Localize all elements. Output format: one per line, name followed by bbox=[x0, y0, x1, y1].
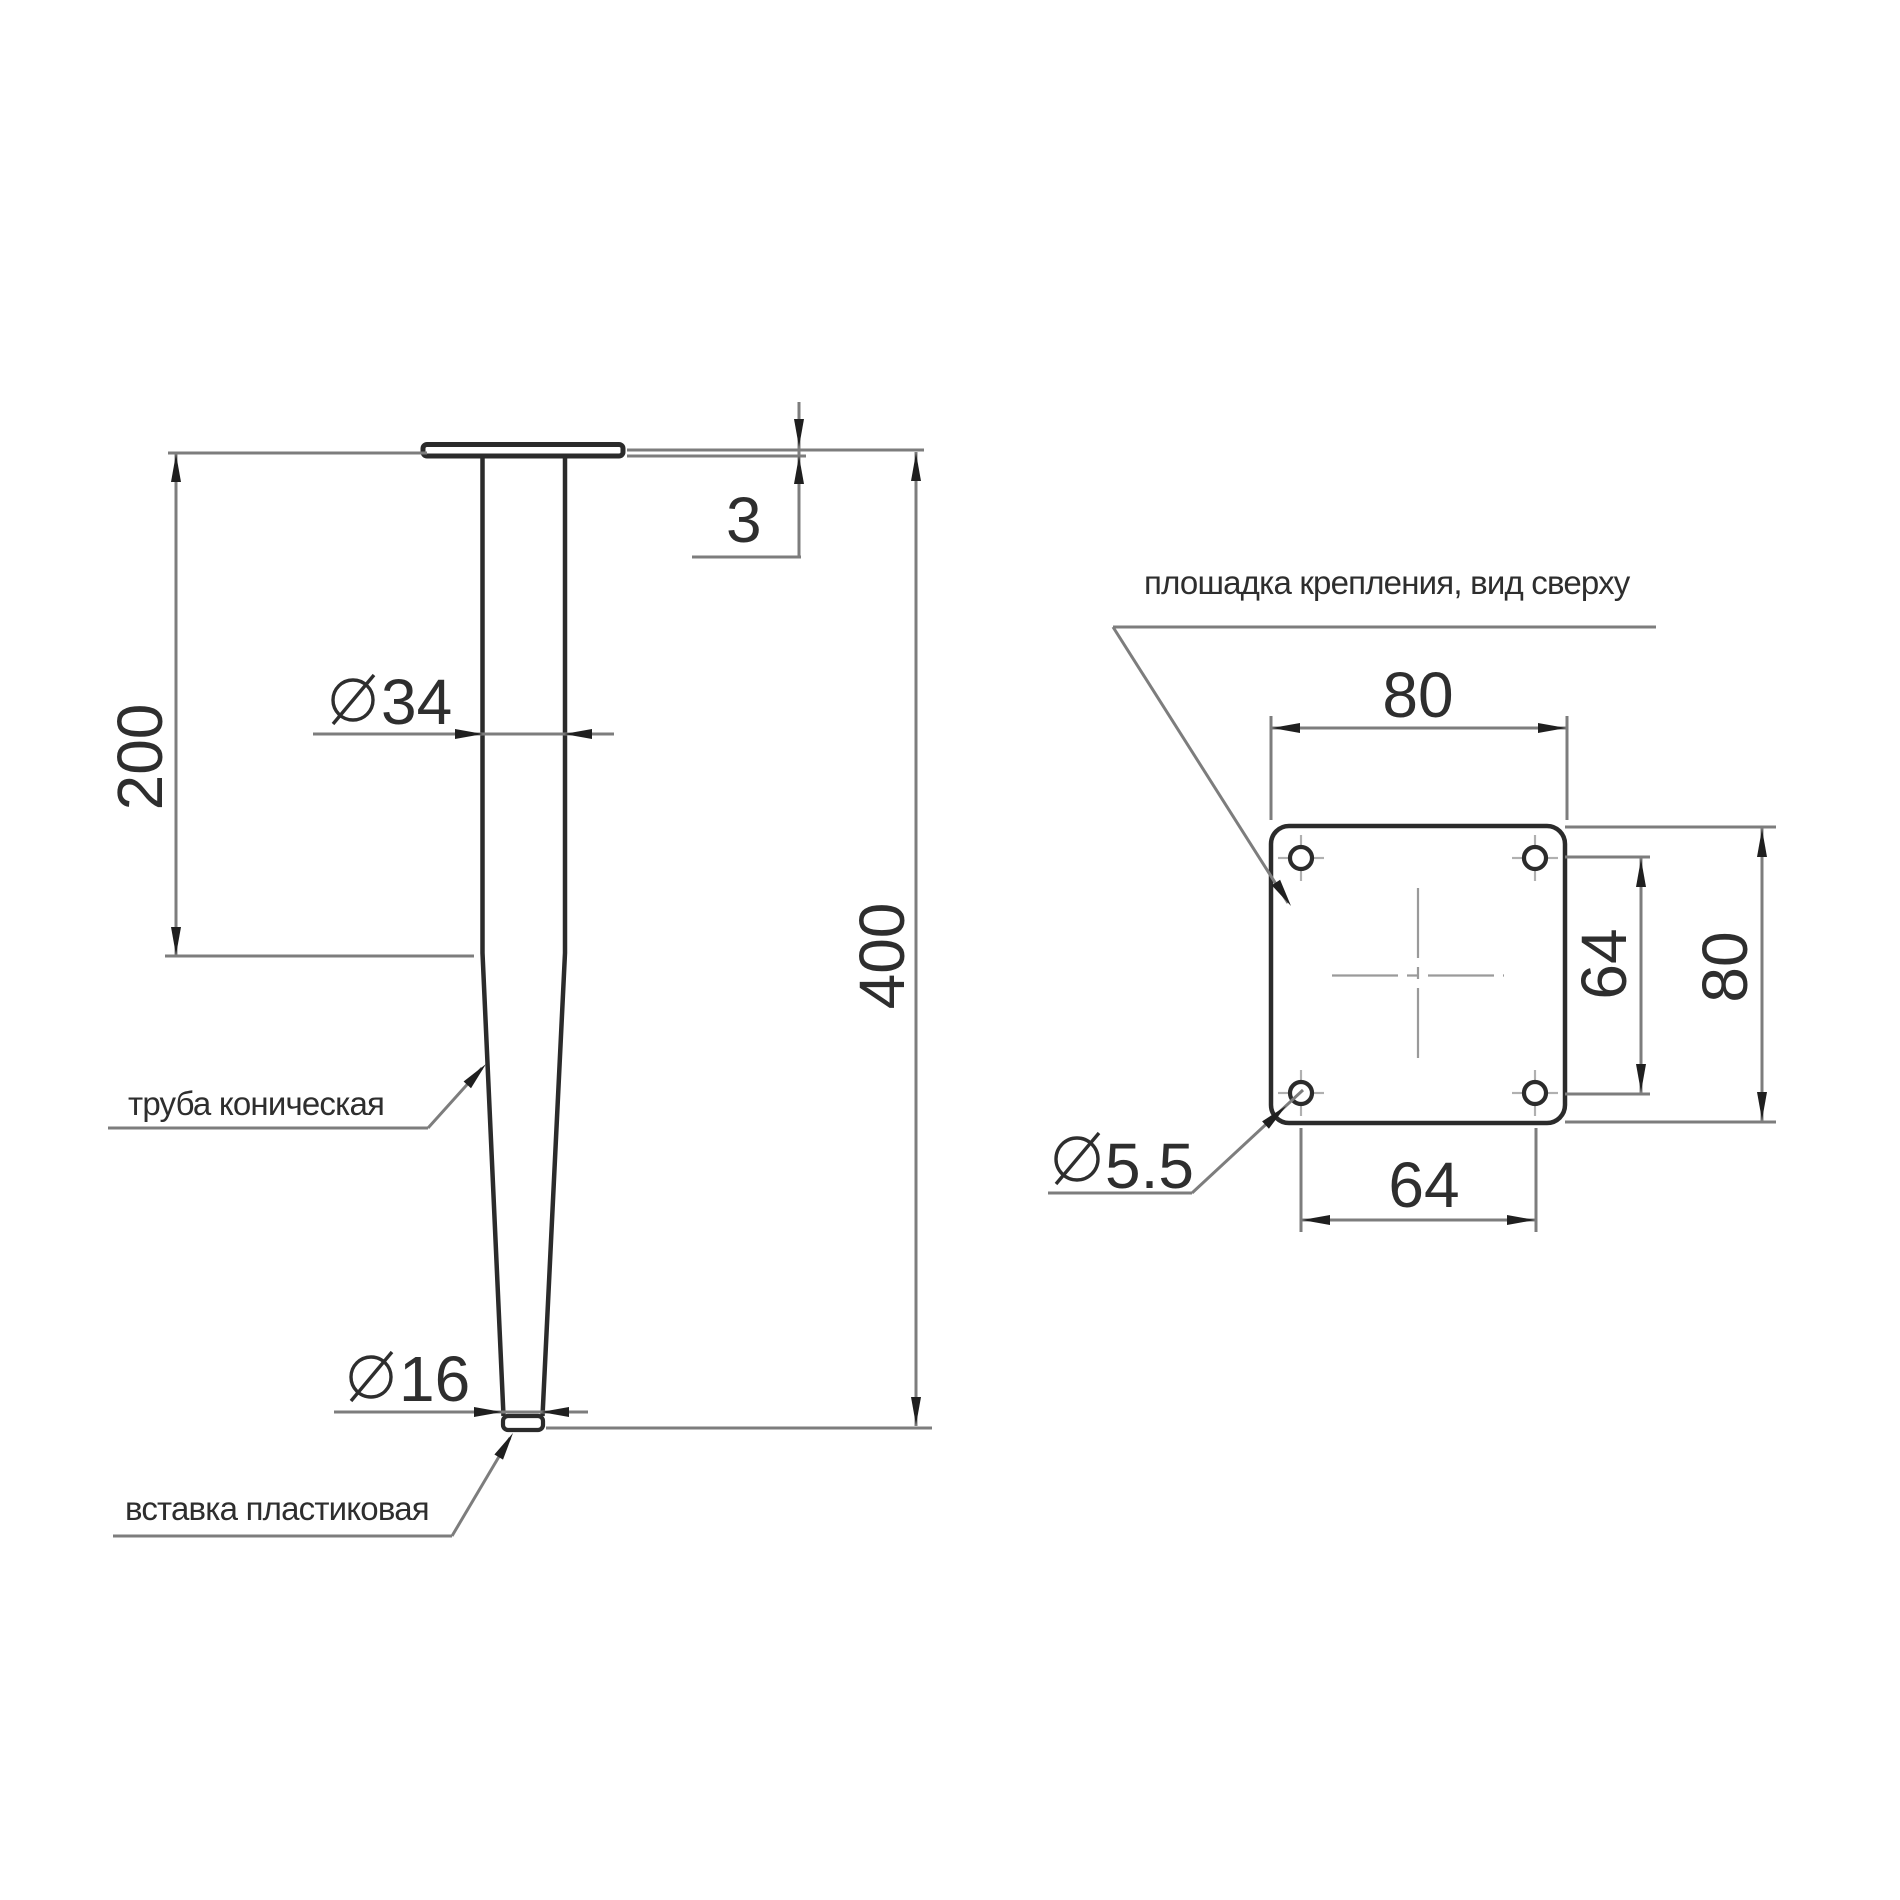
svg-text:64: 64 bbox=[1388, 1149, 1459, 1221]
svg-text:64: 64 bbox=[1568, 928, 1640, 999]
svg-text:5.5: 5.5 bbox=[1105, 1130, 1194, 1202]
svg-text:80: 80 bbox=[1382, 659, 1453, 731]
svg-text:34: 34 bbox=[381, 666, 452, 738]
svg-text:вставка пластиковая: вставка пластиковая bbox=[125, 1490, 429, 1527]
svg-text:16: 16 bbox=[399, 1343, 470, 1415]
svg-text:3: 3 bbox=[726, 484, 762, 556]
svg-text:плошадка крепления, вид сверху: плошадка крепления, вид сверху bbox=[1144, 564, 1631, 601]
svg-text:400: 400 bbox=[846, 903, 918, 1010]
svg-text:80: 80 bbox=[1689, 931, 1761, 1002]
svg-text:труба коническая: труба коническая bbox=[128, 1085, 384, 1122]
svg-text:200: 200 bbox=[104, 704, 176, 811]
